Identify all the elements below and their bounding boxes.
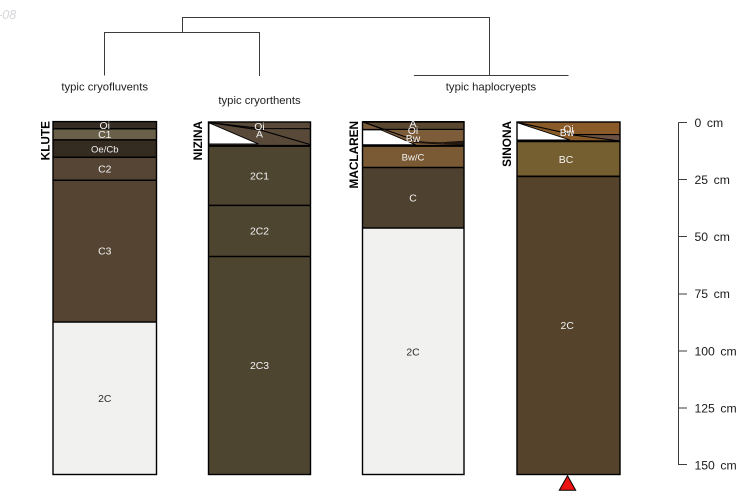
- svg-text:C: C: [409, 193, 417, 204]
- svg-text:MACLAREN: MACLAREN: [347, 121, 361, 189]
- svg-text:Bw: Bw: [406, 134, 421, 145]
- svg-text:KLUTE: KLUTE: [39, 121, 53, 160]
- svg-text:Oe/Cb: Oe/Cb: [91, 145, 118, 156]
- svg-text:125 cm: 125 cm: [695, 401, 737, 415]
- svg-text:2C3: 2C3: [250, 361, 269, 372]
- svg-text:SINONA: SINONA: [500, 121, 514, 167]
- svg-text:25 cm: 25 cm: [695, 173, 730, 187]
- svg-text:BC: BC: [559, 155, 574, 166]
- svg-text:50 cm: 50 cm: [695, 230, 730, 244]
- svg-text:150 cm: 150 cm: [695, 458, 737, 472]
- svg-text:2C: 2C: [98, 394, 112, 405]
- svg-text:typic haplocryepts: typic haplocryepts: [446, 81, 537, 93]
- svg-text:Bw: Bw: [560, 128, 575, 139]
- svg-text:0 cm: 0 cm: [695, 116, 724, 130]
- svg-text:typic cryorthents: typic cryorthents: [218, 95, 301, 107]
- svg-text:C3: C3: [98, 247, 112, 258]
- svg-text:A: A: [256, 130, 263, 141]
- svg-text:100 cm: 100 cm: [695, 344, 737, 358]
- svg-text:typic cryofluvents: typic cryofluvents: [61, 82, 148, 94]
- svg-text:NIZINA: NIZINA: [191, 121, 205, 161]
- svg-text:2C1: 2C1: [250, 171, 269, 182]
- svg-text:-08: -08: [0, 8, 16, 22]
- svg-text:2C: 2C: [406, 348, 420, 359]
- svg-text:C1: C1: [98, 130, 112, 141]
- svg-text:75 cm: 75 cm: [695, 287, 730, 301]
- svg-text:2C2: 2C2: [250, 227, 269, 238]
- svg-text:C2: C2: [98, 164, 112, 175]
- svg-text:Bw/C: Bw/C: [402, 152, 425, 163]
- svg-text:2C: 2C: [561, 321, 575, 332]
